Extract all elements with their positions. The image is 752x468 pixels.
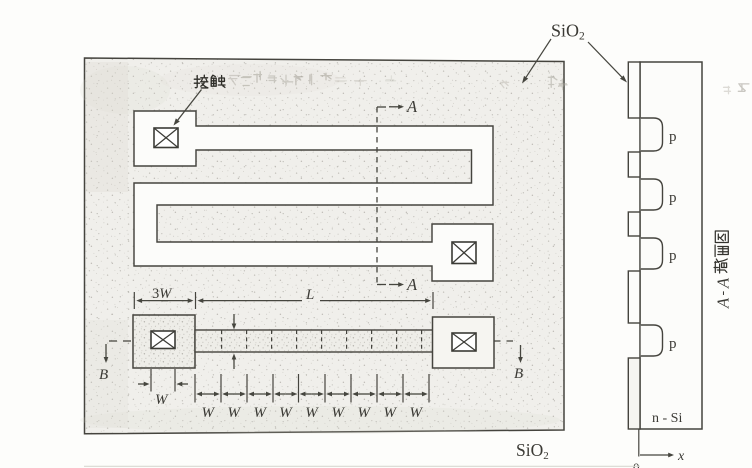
svg-text:A: A	[406, 275, 418, 294]
svg-text:x: x	[677, 449, 685, 464]
svg-text:W: W	[358, 405, 372, 421]
svg-text:W: W	[228, 405, 242, 421]
svg-text:W: W	[254, 405, 268, 421]
svg-text:W: W	[384, 405, 398, 421]
svg-text:p: p	[669, 129, 677, 145]
svg-text:W: W	[279, 405, 293, 421]
svg-text:W: W	[410, 405, 424, 421]
svg-text:-: -	[715, 291, 730, 296]
svg-text:W: W	[332, 405, 346, 421]
svg-text:B: B	[514, 366, 523, 382]
svg-text:3W: 3W	[152, 286, 173, 302]
svg-text:A: A	[713, 297, 732, 309]
svg-text:W: W	[155, 392, 169, 408]
svg-text:A: A	[406, 97, 418, 116]
svg-text:W: W	[305, 405, 319, 421]
svg-text:A: A	[713, 277, 732, 289]
svg-text:n - Si: n - Si	[652, 411, 682, 426]
svg-text:p: p	[669, 248, 677, 264]
svg-text:p: p	[669, 336, 677, 352]
svg-text:p: p	[669, 190, 677, 206]
svg-text:W: W	[202, 405, 216, 421]
svg-text:B: B	[99, 367, 108, 383]
svg-text:L: L	[305, 287, 314, 303]
